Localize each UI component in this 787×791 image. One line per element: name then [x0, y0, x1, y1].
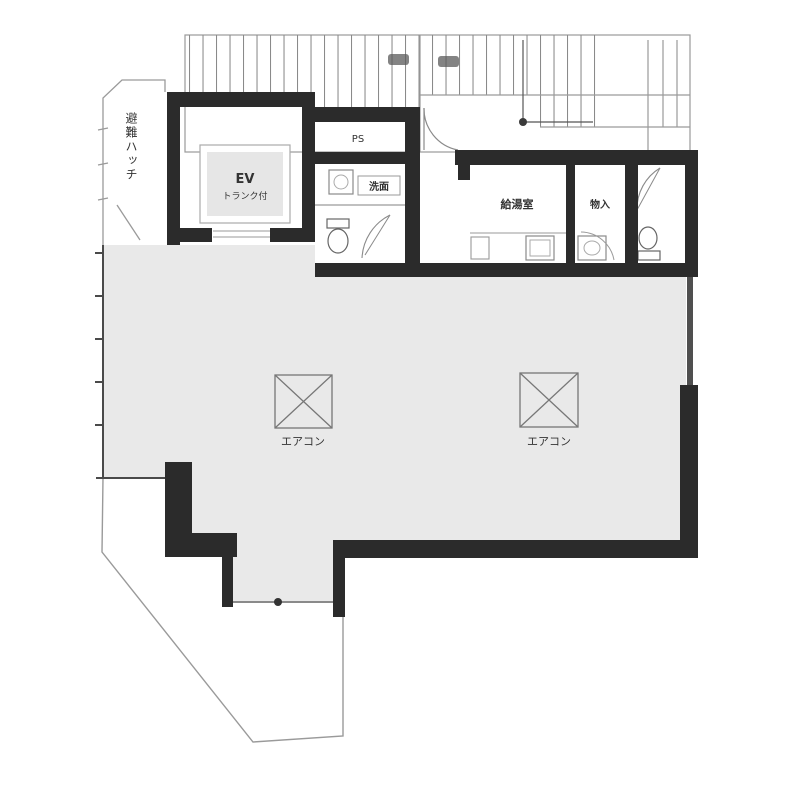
wall-storage-wc-divider [625, 165, 638, 263]
wall-l-horizontal [165, 533, 237, 557]
wall-ps-divider [315, 152, 405, 164]
wall-right-upper [685, 150, 698, 277]
entry-door-arc-icon [424, 108, 458, 150]
wall-ev-bottom-left-stub [167, 228, 212, 242]
wall-ev-bottom-right-stub [270, 228, 315, 242]
evacuation-hatch-mark [117, 205, 140, 240]
toilet-icon-right [638, 227, 660, 260]
wall-right-block-left-upper [458, 150, 470, 180]
washbasin-icon [329, 170, 353, 194]
elevator-label-line1: EV [236, 172, 255, 187]
floor-plan-canvas: 避難ハッチ EV トランク付 PS 洗面 [0, 0, 787, 787]
pipe-shaft-label: PS [352, 134, 364, 145]
wall-bottom [333, 540, 698, 558]
storage-label: 物入 [590, 198, 610, 211]
wall-ps-top [315, 107, 420, 122]
ac-label-right: エアコン [527, 435, 571, 448]
wall-ev-right [302, 92, 315, 242]
washbasin-label: 洗面 [369, 180, 389, 193]
elevator-room: EV トランク付 [200, 145, 290, 237]
wall-protrusion-right [333, 540, 345, 617]
stair-text-mark-left [388, 54, 409, 65]
stair-text-mark-right [438, 56, 459, 67]
evacuation-hatch-label: 避難ハッチ [124, 112, 138, 182]
toilet-icon-left [327, 219, 349, 253]
wall-kitchen-storage-divider [566, 165, 575, 263]
kitchenette: 給湯室 [470, 197, 566, 260]
storage-room: 物入 [578, 198, 614, 260]
wall-long-south-of-top-row [315, 263, 698, 277]
wall-protrusion-left [222, 557, 233, 607]
south-window-dot [274, 598, 282, 606]
floor-plan-page: 避難ハッチ EV トランク付 PS 洗面 [0, 0, 787, 787]
wall-right-block-top [455, 150, 698, 165]
wall-right-window [687, 277, 693, 385]
counter-box-icon [471, 237, 489, 259]
ac-label-left: エアコン [281, 435, 325, 448]
wall-ev-left [167, 92, 180, 245]
wc-right-door-leaf [637, 168, 660, 210]
wall-ev-top [167, 92, 315, 107]
wall-ps-right [405, 107, 420, 277]
wall-right-lower [680, 385, 698, 543]
entry-door [424, 108, 458, 150]
elevator-label-line2: トランク付 [222, 191, 267, 202]
stair-hatch-mid [315, 95, 420, 108]
wc-room-right [637, 168, 660, 260]
kitchenette-label: 給湯室 [501, 197, 534, 211]
